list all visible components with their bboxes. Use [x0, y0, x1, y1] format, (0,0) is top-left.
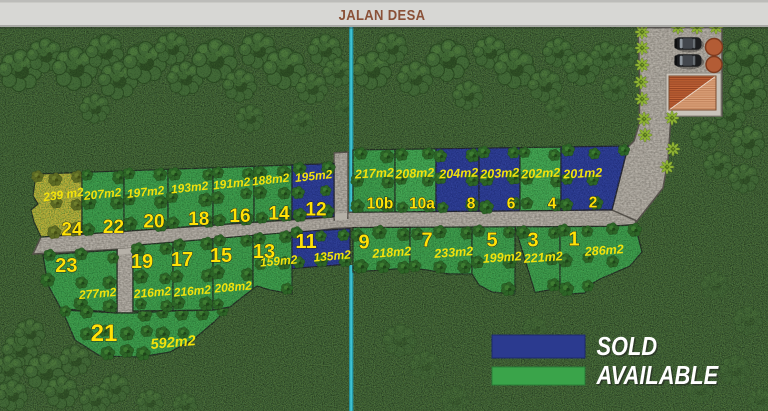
svg-text:17: 17	[171, 249, 193, 271]
svg-text:SOLD: SOLD	[597, 332, 658, 361]
svg-text:201m2: 201m2	[562, 165, 603, 181]
svg-text:203m2: 203m2	[479, 165, 520, 181]
svg-text:233m2: 233m2	[433, 244, 474, 261]
svg-text:AVAILABLE: AVAILABLE	[596, 361, 719, 390]
svg-text:14: 14	[268, 204, 290, 225]
svg-text:18: 18	[188, 209, 209, 230]
svg-text:5: 5	[486, 230, 497, 252]
svg-text:JALAN DESA: JALAN DESA	[339, 6, 426, 23]
svg-text:10a: 10a	[409, 196, 435, 213]
svg-text:9: 9	[358, 232, 369, 254]
svg-text:4: 4	[548, 196, 557, 213]
svg-text:217m2: 217m2	[354, 165, 395, 181]
svg-text:13: 13	[253, 241, 275, 263]
svg-text:10b: 10b	[367, 196, 394, 213]
svg-text:221m2: 221m2	[522, 249, 563, 266]
svg-text:22: 22	[103, 217, 124, 238]
svg-text:286m2: 286m2	[583, 242, 624, 259]
svg-text:24: 24	[61, 220, 83, 241]
svg-text:208m2: 208m2	[394, 165, 435, 181]
svg-text:16: 16	[229, 206, 250, 227]
svg-text:23: 23	[55, 255, 77, 277]
svg-text:6: 6	[507, 196, 516, 213]
svg-text:8: 8	[467, 196, 476, 213]
svg-text:204m2: 204m2	[438, 165, 479, 181]
svg-text:199m2: 199m2	[482, 249, 522, 266]
svg-text:12: 12	[305, 200, 326, 221]
svg-text:11: 11	[295, 231, 316, 253]
svg-text:21: 21	[91, 320, 118, 347]
svg-text:3: 3	[527, 230, 538, 252]
svg-text:19: 19	[131, 251, 153, 273]
svg-text:20: 20	[143, 212, 164, 233]
svg-text:2: 2	[589, 195, 598, 212]
svg-text:7: 7	[421, 230, 432, 252]
svg-text:202m2: 202m2	[520, 165, 561, 181]
svg-text:1: 1	[568, 229, 579, 251]
svg-text:218m2: 218m2	[371, 244, 412, 261]
svg-text:15: 15	[210, 245, 232, 267]
